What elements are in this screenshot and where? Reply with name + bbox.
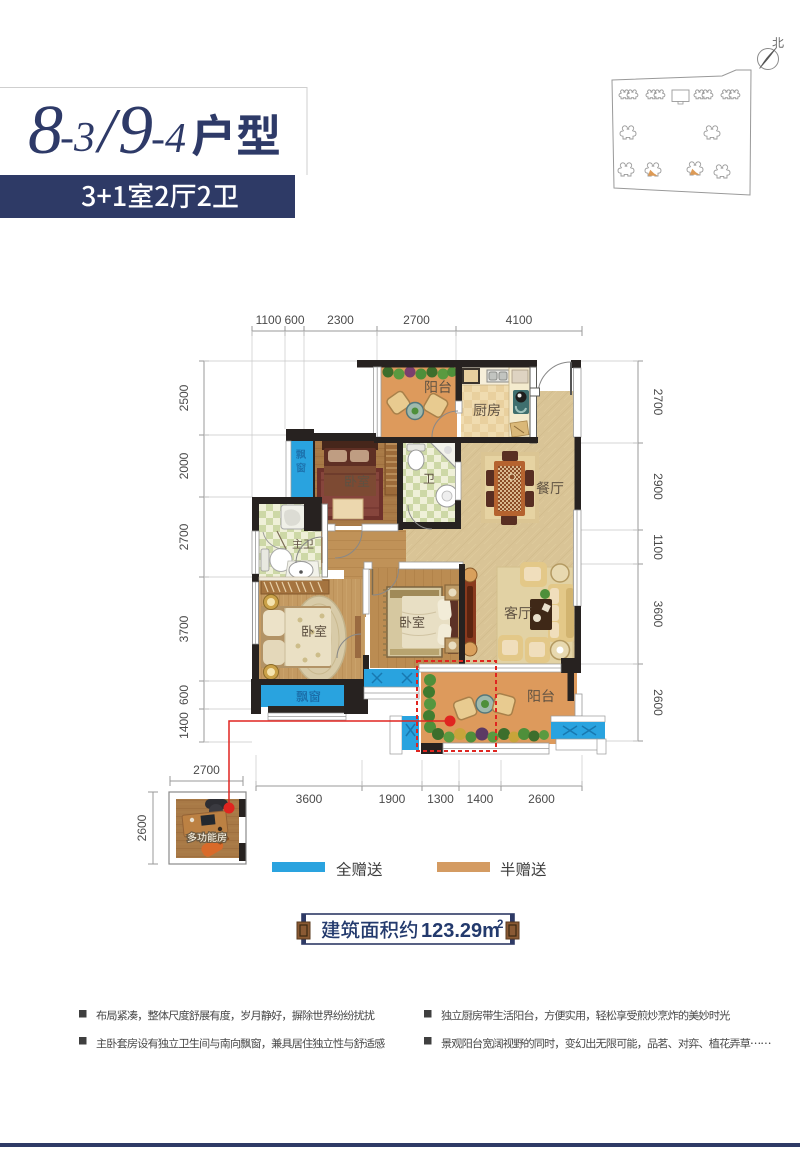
svg-text:1100: 1100: [651, 534, 665, 560]
svg-text:1300: 1300: [427, 792, 454, 806]
svg-text:2700: 2700: [651, 389, 665, 416]
svg-text:2600: 2600: [651, 689, 665, 716]
svg-text:-4: -4: [151, 116, 186, 162]
svg-text:2900: 2900: [651, 473, 665, 500]
svg-text:2500: 2500: [177, 384, 191, 411]
svg-text:600: 600: [177, 685, 191, 705]
svg-text:2: 2: [497, 919, 503, 931]
svg-text:3700: 3700: [177, 615, 191, 642]
svg-text:1400: 1400: [177, 712, 191, 739]
svg-text:2300: 2300: [327, 313, 354, 327]
svg-text:2000: 2000: [177, 452, 191, 479]
svg-text:3600: 3600: [296, 792, 323, 806]
svg-text:3600: 3600: [651, 601, 665, 628]
svg-text:2700: 2700: [177, 523, 191, 550]
svg-text:2700: 2700: [193, 763, 220, 777]
svg-text:9: 9: [118, 92, 153, 169]
svg-text:123.29m: 123.29m: [421, 920, 500, 942]
svg-text:2700: 2700: [403, 313, 430, 327]
svg-text:4100: 4100: [506, 313, 533, 327]
svg-text:8: 8: [28, 92, 63, 169]
svg-text:1100: 1100: [256, 313, 282, 327]
svg-text:600: 600: [284, 313, 304, 327]
svg-text:-3: -3: [60, 115, 95, 161]
svg-text:2600: 2600: [135, 814, 149, 841]
svg-text:1400: 1400: [467, 792, 494, 806]
svg-text:2600: 2600: [528, 792, 555, 806]
svg-text:1900: 1900: [379, 792, 406, 806]
